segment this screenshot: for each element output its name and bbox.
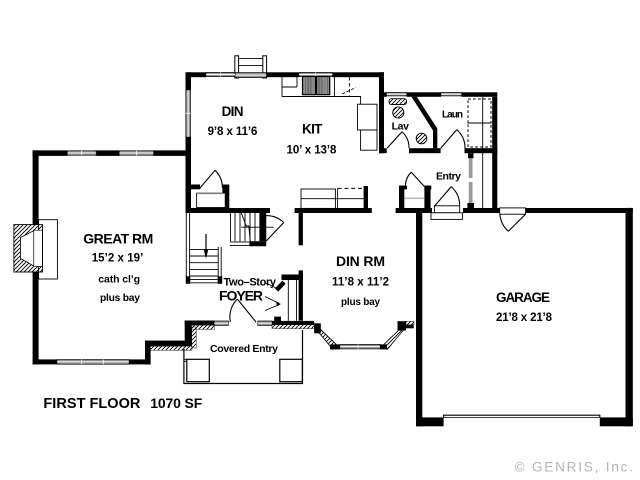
svg-text:15’2 x 19’: 15’2 x 19’ xyxy=(92,253,144,265)
svg-text:KIT: KIT xyxy=(302,121,323,136)
svg-text:Two–Story: Two–Story xyxy=(224,276,277,288)
svg-text:10’ x 13’8: 10’ x 13’8 xyxy=(287,145,337,157)
svg-text:1070 SF: 1070 SF xyxy=(150,395,203,411)
svg-text:Entry: Entry xyxy=(436,171,461,183)
svg-text:cath cl’g: cath cl’g xyxy=(98,274,140,286)
svg-text:Lav: Lav xyxy=(392,120,410,132)
svg-text:plus bay: plus bay xyxy=(100,293,140,304)
svg-text:FIRST FLOOR: FIRST FLOOR xyxy=(43,396,141,412)
svg-text:© GENRIS, Inc.: © GENRIS, Inc. xyxy=(515,460,633,475)
svg-text:GREAT RM: GREAT RM xyxy=(83,230,153,246)
svg-text:GARAGE: GARAGE xyxy=(496,290,550,305)
svg-text:11’8 x 11’2: 11’8 x 11’2 xyxy=(332,276,389,288)
svg-text:DIN: DIN xyxy=(222,104,244,119)
svg-text:Covered Entry: Covered Entry xyxy=(210,343,278,355)
svg-text:FOYER: FOYER xyxy=(219,288,263,304)
svg-text:Laun: Laun xyxy=(442,109,463,120)
svg-text:DIN RM: DIN RM xyxy=(336,253,385,269)
svg-text:9’8 x 11’6: 9’8 x 11’6 xyxy=(208,126,258,138)
svg-text:21’8 x 21’8: 21’8 x 21’8 xyxy=(496,312,553,324)
svg-text:plus bay: plus bay xyxy=(341,297,380,308)
